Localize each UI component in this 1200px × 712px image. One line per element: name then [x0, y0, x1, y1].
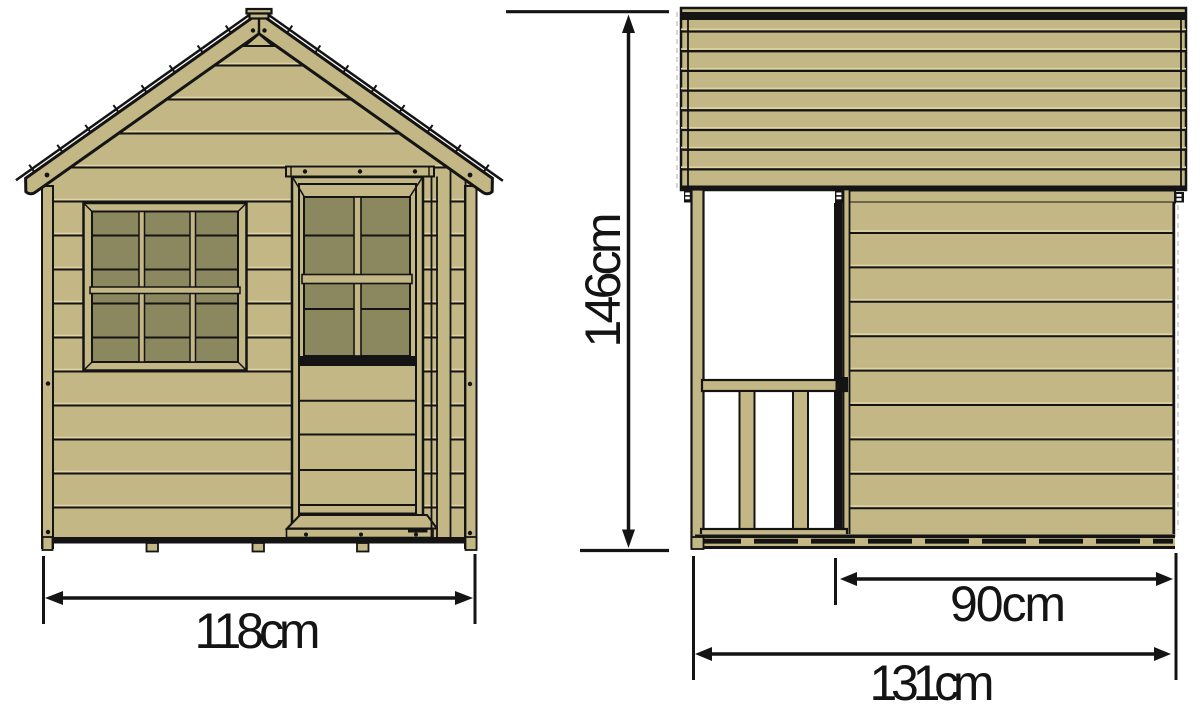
svg-text:90cm: 90cm [950, 576, 1066, 632]
svg-text:118cm: 118cm [195, 603, 321, 659]
svg-text:146cm: 146cm [575, 213, 631, 348]
svg-text:131cm: 131cm [870, 655, 995, 711]
